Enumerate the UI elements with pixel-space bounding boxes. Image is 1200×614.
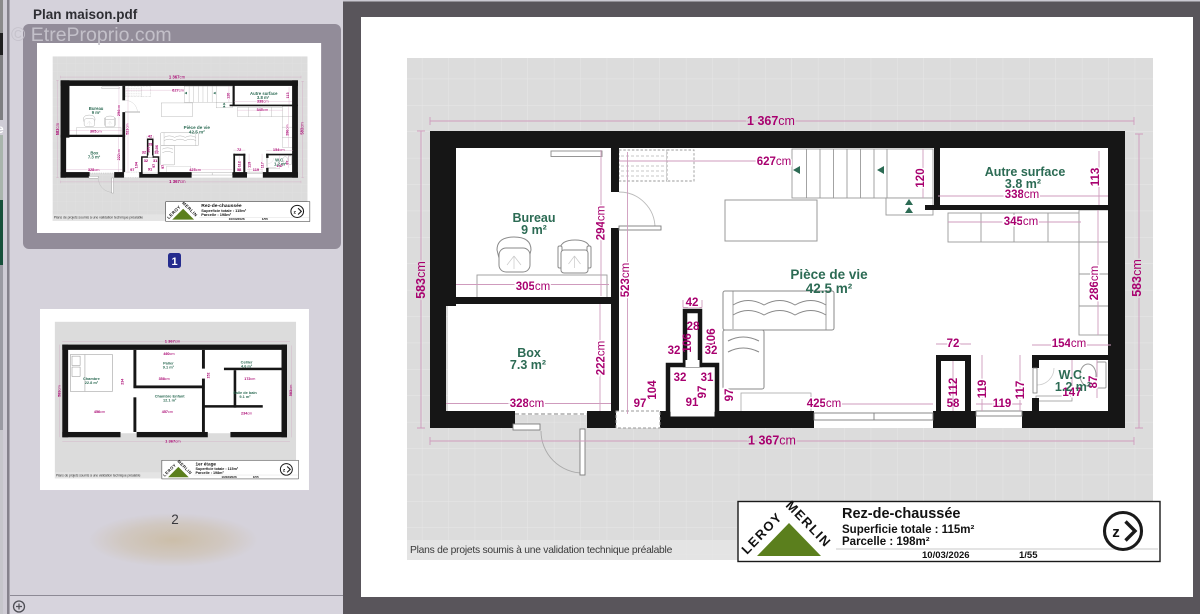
svg-text:1: 1 bbox=[171, 256, 177, 268]
svg-text:2: 2 bbox=[171, 512, 179, 527]
svg-text:e: e bbox=[0, 122, 4, 136]
svg-text:© EtreProprio.com: © EtreProprio.com bbox=[11, 24, 172, 46]
svg-text:Plan maison.pdf: Plan maison.pdf bbox=[33, 7, 138, 22]
